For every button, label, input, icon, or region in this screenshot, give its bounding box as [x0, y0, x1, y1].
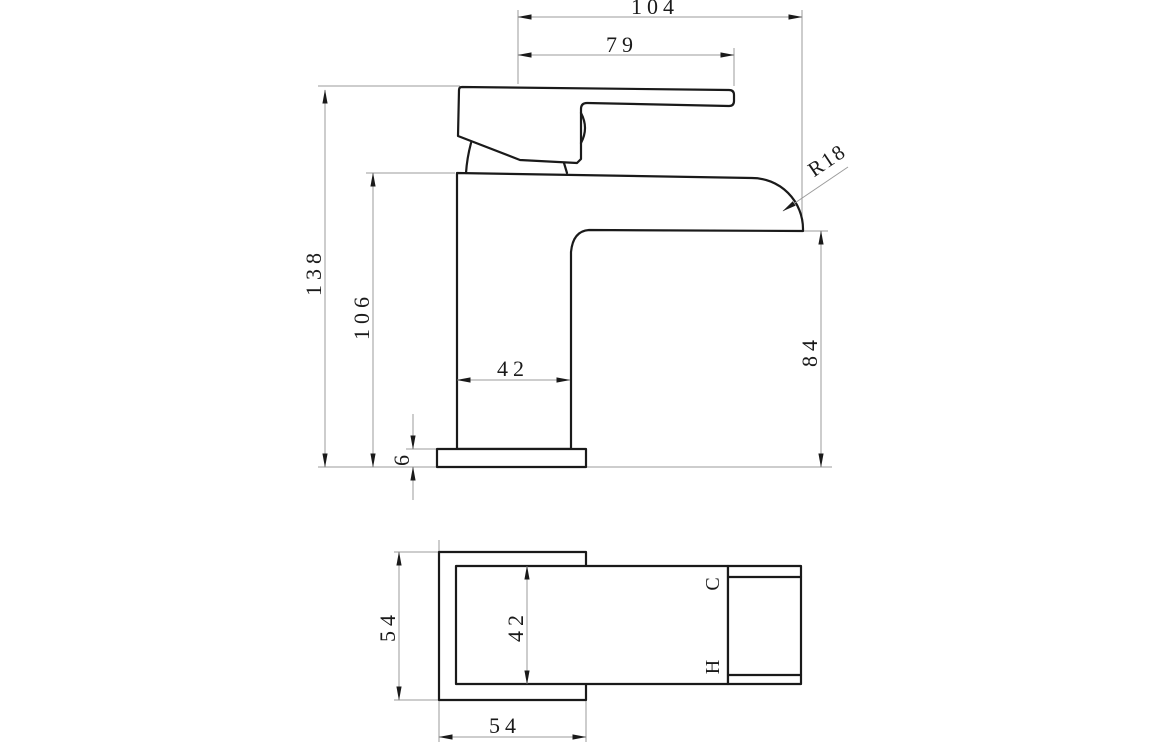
plan-body-outline	[456, 566, 728, 684]
dim-label-spout-height: 84	[797, 335, 822, 367]
side-elevation-view: 104 79 138 106 42 6 84 R18	[301, 0, 851, 500]
handle-lever-outline	[458, 87, 734, 163]
dim-label-body-height: 106	[349, 292, 374, 340]
base-plate	[437, 449, 586, 467]
dim-label-base-thickness: 6	[389, 450, 414, 466]
dim-label-overall-height: 138	[301, 248, 326, 296]
drawing-canvas: 104 79 138 106 42 6 84 R18 54 42 54 C	[0, 0, 1156, 742]
dim-label-body-depth: 42	[503, 610, 528, 642]
neck-left-line	[466, 143, 471, 173]
plan-handle-outline	[728, 566, 801, 684]
plan-view: 54 42 54 C H	[375, 540, 801, 742]
technical-drawing: 104 79 138 106 42 6 84 R18 54 42 54 C	[0, 0, 1156, 742]
neck-right-line	[564, 163, 567, 173]
dim-label-body-width: 42	[497, 356, 529, 381]
dim-label-overall-width: 104	[631, 0, 679, 19]
dim-label-base-depth: 54	[375, 610, 400, 642]
dim-label-base-width: 54	[489, 713, 521, 738]
dim-label-spout-radius: R18	[803, 139, 850, 182]
body-spout-outline	[457, 173, 803, 449]
cold-port-label: C	[702, 577, 724, 590]
hot-port-label: H	[702, 660, 724, 674]
dim-label-handle-reach: 79	[606, 32, 638, 57]
